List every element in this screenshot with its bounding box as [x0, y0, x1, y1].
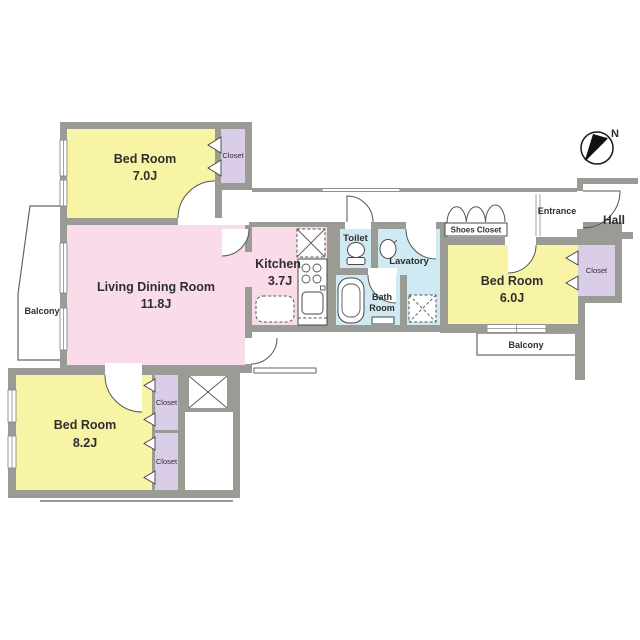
- bath-label-line1: Bath: [372, 292, 392, 302]
- room-bedroom-6: [448, 191, 622, 333]
- corridor-vestibule: [222, 190, 252, 222]
- bedroom7-closet-label: Closet: [222, 151, 244, 160]
- bedroom7-door-opening: [178, 218, 249, 225]
- entrance-door-opening: [577, 191, 583, 229]
- service-step: [254, 368, 316, 373]
- shoes-closet-label: Shoes Closet: [451, 226, 502, 235]
- living-kitchen-opening: [245, 252, 252, 287]
- living-floor: [67, 225, 245, 365]
- toilet-label: Toilet: [343, 233, 368, 244]
- bedroom6-name: Bed Room: [481, 274, 544, 288]
- floor-plan-canvas: Balcony Balcony: [0, 0, 640, 640]
- hall-label: Hall: [603, 213, 625, 227]
- compass-north-label: N: [611, 128, 619, 140]
- bedroom7-size: 7.0J: [133, 169, 157, 183]
- compass: N: [581, 128, 619, 164]
- bedroom6-door-opening: [505, 237, 536, 245]
- shoes-closet-accordion-arcs: [447, 205, 505, 222]
- lavatory-label: Lavatory: [389, 256, 429, 267]
- kitchen-table-dashed: [256, 296, 294, 322]
- outside-below-closet: [585, 303, 622, 333]
- bedroom7-name: Bed Room: [114, 152, 177, 166]
- floor-plan-svg: Balcony Balcony: [0, 0, 640, 640]
- toilet-tank: [347, 258, 365, 265]
- bedroom8-side-void: [185, 412, 233, 490]
- bedroom8-closet-top-label: Closet: [156, 398, 178, 407]
- bedroom8-size: 8.2J: [73, 436, 97, 450]
- wall-hall-south: [587, 232, 633, 239]
- living-name: Living Dining Room: [97, 280, 215, 294]
- balcony-left-outline: [18, 206, 66, 360]
- bedroom6-closet-label: Closet: [586, 266, 608, 275]
- room-bedroom-7: [67, 129, 252, 225]
- bath-counter: [372, 317, 394, 324]
- kitchen-size: 3.7J: [268, 274, 292, 288]
- kitchen-sink: [302, 292, 323, 314]
- bedroom8-closet-bottom-label: Closet: [156, 457, 178, 466]
- kitchen-name: Kitchen: [255, 257, 301, 271]
- bedroom8-door-opening: [105, 363, 142, 375]
- living-size: 11.8J: [141, 297, 172, 311]
- bedroom6-size: 6.0J: [500, 291, 524, 305]
- balcony-right: Balcony: [477, 333, 576, 355]
- bath-label-line2: Room: [369, 303, 395, 313]
- toilet-bowl: [348, 243, 365, 258]
- lavatory-door-opening: [406, 222, 436, 229]
- bedroom8-name: Bed Room: [54, 418, 117, 432]
- service-door-opening: [245, 338, 252, 364]
- wall-stub-southeast: [575, 333, 585, 380]
- toilet-fixture: [347, 243, 365, 265]
- wall-corridor-north-thin: [252, 188, 583, 192]
- balcony-right-label: Balcony: [508, 340, 543, 350]
- balcony-left: Balcony: [18, 206, 66, 360]
- entrance-label: Entrance: [538, 206, 577, 216]
- balcony-left-label: Balcony: [24, 306, 59, 316]
- wall-hall-north: [583, 178, 638, 184]
- bath-door-opening: [368, 268, 397, 275]
- window-corridor-north: [322, 189, 400, 192]
- toilet-door-opening: [345, 222, 371, 229]
